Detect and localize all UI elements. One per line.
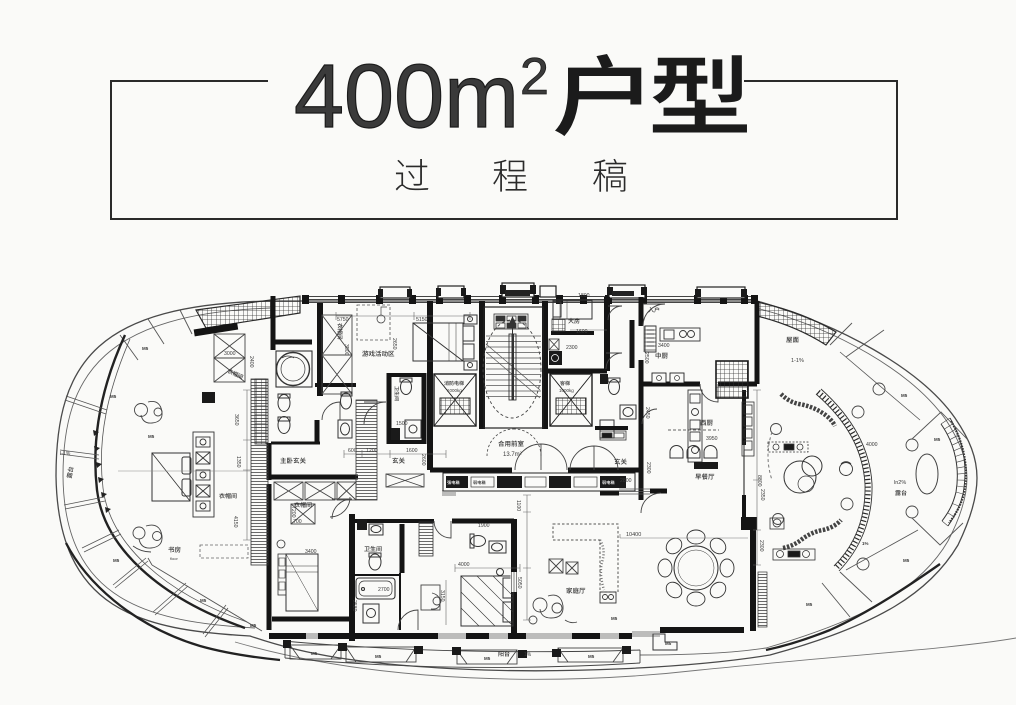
svg-text:floor: floor — [170, 556, 178, 561]
svg-text:M5: M5 — [611, 616, 618, 621]
svg-text:M5: M5 — [934, 437, 941, 442]
svg-text:M5: M5 — [113, 558, 120, 563]
svg-text:I-1%: I-1% — [60, 451, 71, 457]
svg-text:3500: 3500 — [343, 344, 349, 356]
svg-text:1800: 1800 — [578, 293, 590, 299]
svg-text:700: 700 — [293, 519, 302, 525]
svg-text:5150: 5150 — [416, 317, 428, 323]
svg-text:3400: 3400 — [658, 343, 670, 349]
svg-text:M5: M5 — [148, 434, 155, 439]
svg-text:M5: M5 — [665, 641, 672, 646]
svg-text:1%: 1% — [862, 541, 869, 546]
svg-text:1600: 1600 — [576, 329, 588, 335]
svg-text:600: 600 — [348, 448, 357, 454]
svg-text:400m: 400m — [294, 47, 519, 147]
svg-text:M5: M5 — [901, 393, 908, 398]
svg-text:M5: M5 — [903, 558, 910, 563]
svg-text:10400: 10400 — [626, 532, 641, 538]
svg-text:M5: M5 — [110, 394, 117, 399]
svg-text:3150: 3150 — [439, 590, 445, 602]
svg-text:2580: 2580 — [351, 600, 357, 612]
svg-text:M5: M5 — [200, 598, 207, 603]
svg-text:3950: 3950 — [706, 436, 718, 442]
svg-text:8800: 8800 — [756, 475, 762, 487]
svg-text:2: 2 — [520, 48, 549, 106]
svg-text:2300: 2300 — [645, 462, 651, 474]
svg-text:1000kg: 1000kg — [447, 388, 462, 393]
svg-text:M5: M5 — [311, 651, 318, 656]
svg-text:M5: M5 — [250, 623, 257, 628]
svg-text:3400: 3400 — [305, 549, 317, 555]
svg-text:1500: 1500 — [396, 421, 408, 427]
svg-text:1200: 1200 — [366, 448, 378, 454]
svg-text:4000: 4000 — [866, 442, 878, 448]
svg-text:2700: 2700 — [378, 587, 390, 593]
svg-text:M5: M5 — [484, 656, 491, 661]
svg-text:1%: 1% — [524, 652, 532, 658]
svg-text:2300: 2300 — [566, 345, 578, 351]
svg-text:M5: M5 — [806, 602, 813, 607]
svg-text:2600: 2600 — [420, 454, 426, 466]
svg-text:3650: 3650 — [233, 414, 239, 426]
svg-text:M5: M5 — [588, 654, 595, 659]
svg-text:2350: 2350 — [759, 489, 765, 501]
svg-text:1900: 1900 — [478, 523, 490, 529]
svg-text:ln2%: ln2% — [894, 480, 906, 486]
svg-text:M5: M5 — [142, 346, 149, 351]
svg-text:2800: 2800 — [620, 478, 632, 484]
svg-text:4000: 4000 — [458, 562, 470, 568]
svg-text:1350: 1350 — [235, 456, 241, 468]
svg-text:1000kg: 1000kg — [559, 388, 574, 393]
svg-text:13.7m²: 13.7m² — [503, 452, 522, 458]
svg-text:2500: 2500 — [643, 352, 649, 364]
svg-text:2400: 2400 — [248, 356, 254, 368]
svg-text:2450: 2450 — [644, 407, 650, 419]
svg-text:1-1%: 1-1% — [791, 358, 804, 364]
svg-text:1100: 1100 — [515, 500, 521, 511]
svg-text:4150: 4150 — [232, 516, 238, 528]
svg-text:7200: 7200 — [290, 506, 296, 518]
svg-text:1600: 1600 — [406, 448, 418, 454]
svg-text:M5: M5 — [375, 654, 382, 659]
svg-text:2300: 2300 — [758, 540, 764, 552]
svg-text:2650: 2650 — [391, 338, 397, 350]
svg-text:5750: 5750 — [337, 317, 349, 323]
svg-text:5050: 5050 — [516, 577, 522, 589]
svg-text:3000: 3000 — [224, 351, 236, 357]
